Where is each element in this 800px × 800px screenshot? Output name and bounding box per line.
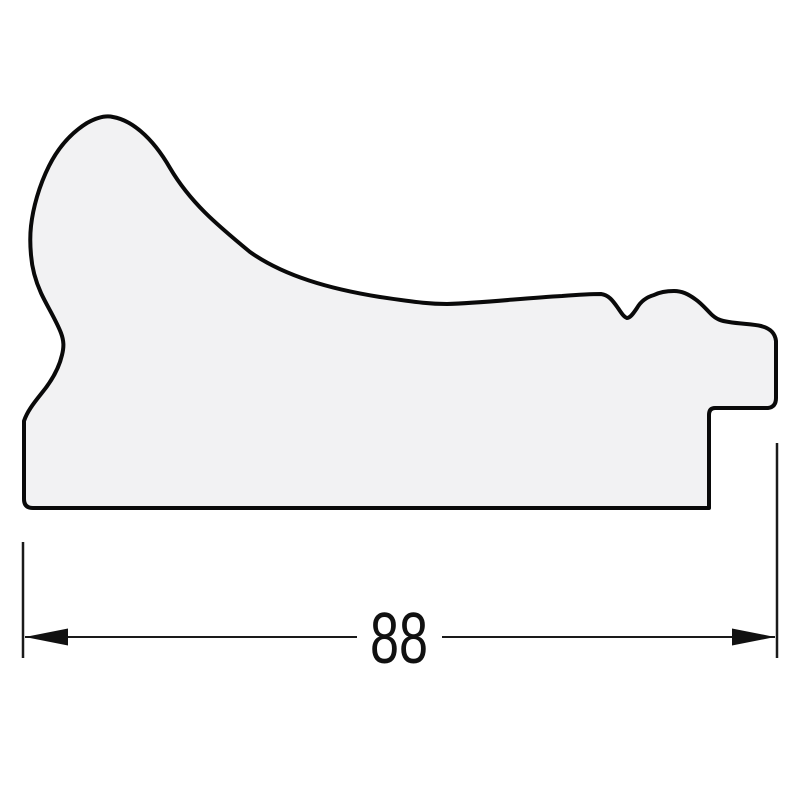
- drawing-svg: 88: [0, 0, 800, 800]
- technical-drawing: 88: [0, 0, 800, 800]
- dimension-value-label: 88: [370, 599, 428, 679]
- dimension-arrowhead-right-icon: [732, 629, 775, 646]
- moulding-profile-outline: [24, 116, 776, 508]
- dimension-arrowhead-left-icon: [25, 629, 68, 646]
